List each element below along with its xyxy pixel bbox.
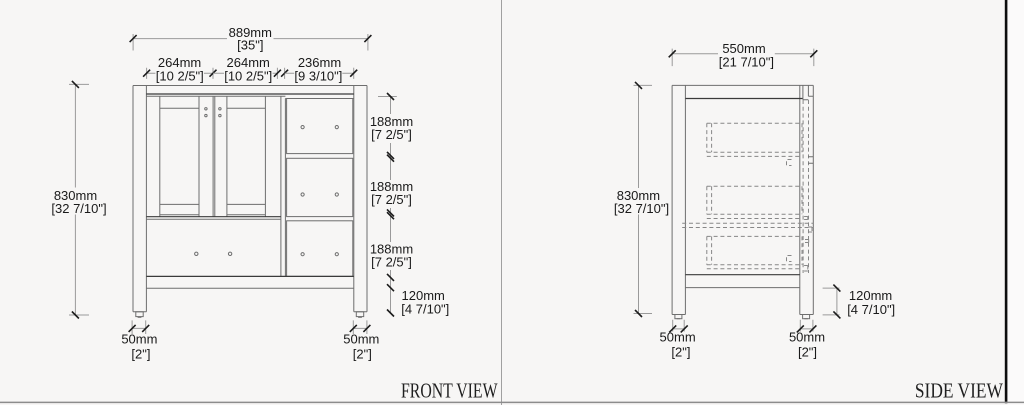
- svg-text:[10 2/5"]: [10 2/5"]: [224, 68, 272, 83]
- svg-text:[2"]: [2"]: [131, 347, 150, 362]
- svg-text:[32 7/10"]: [32 7/10"]: [614, 201, 669, 216]
- svg-text:[35"]: [35"]: [237, 37, 263, 52]
- svg-text:50mm: 50mm: [121, 331, 157, 346]
- svg-text:[7 2/5"]: [7 2/5"]: [371, 192, 412, 207]
- svg-text:[32 7/10"]: [32 7/10"]: [51, 201, 106, 216]
- svg-text:[7 2/5"]: [7 2/5"]: [371, 254, 412, 269]
- svg-text:[7 2/5"]: [7 2/5"]: [371, 127, 412, 142]
- svg-text:[21 7/10"]: [21 7/10"]: [719, 54, 774, 69]
- svg-text:50mm: 50mm: [789, 329, 825, 344]
- svg-text:FRONT VIEW: FRONT VIEW: [401, 379, 498, 403]
- svg-text:50mm: 50mm: [343, 331, 379, 346]
- svg-text:[2"]: [2"]: [671, 345, 690, 360]
- svg-text:[9 3/10"]: [9 3/10"]: [294, 68, 342, 83]
- svg-text:[4 7/10"]: [4 7/10"]: [401, 302, 449, 317]
- svg-text:[2"]: [2"]: [353, 347, 372, 362]
- svg-text:[2"]: [2"]: [798, 345, 817, 360]
- svg-text:50mm: 50mm: [660, 329, 696, 344]
- svg-text:[10 2/5"]: [10 2/5"]: [156, 68, 204, 83]
- svg-text:SIDE VIEW: SIDE VIEW: [915, 379, 1003, 403]
- svg-text:[4 7/10"]: [4 7/10"]: [847, 302, 895, 317]
